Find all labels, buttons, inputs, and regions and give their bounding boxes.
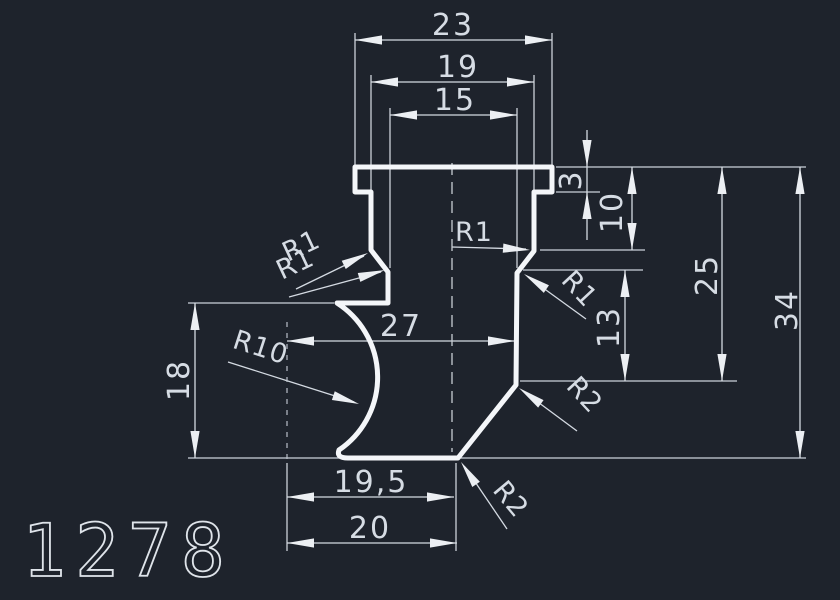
dim-label-15: 15 [434,83,476,118]
dim-arrowhead [488,336,515,345]
cad-drawing-canvas: 23 19 15 27 19,5 20 18 3 10 13 25 34 R1 … [0,0,840,600]
radius-label-r2-base: R2 [486,475,534,524]
dim-arrowhead [795,431,804,458]
dim-arrowhead [287,538,314,547]
dim-arrowhead [717,167,726,194]
dim-arrowhead [717,354,726,381]
part-profile-outline [337,167,552,458]
radius-label-r1-center: R1 [455,217,493,248]
dim-label-18: 18 [162,359,197,401]
leader-arrowhead [516,384,543,407]
dim-arrowhead [620,354,629,381]
dim-label-25: 25 [690,254,725,296]
cad-drawing: 23 19 15 27 19,5 20 18 3 10 13 25 34 R1 … [0,0,840,600]
dim-arrowhead [355,35,382,44]
dim-arrowhead [620,270,629,297]
dim-label-3: 3 [554,169,589,190]
dim-arrowhead [427,492,454,501]
dim-arrowhead [371,77,398,86]
drawing-number: 1278 [22,509,234,594]
dim-label-27: 27 [380,309,422,344]
dim-arrowhead [190,303,199,330]
dim-arrowhead [795,167,804,194]
dim-arrowhead [582,192,591,219]
leader-arrowhead [342,249,370,269]
dimension-labels: 23 19 15 27 19,5 20 18 3 10 13 25 34 [162,8,805,546]
leader-arrowhead [521,270,549,293]
radius-label-r2-shoulder: R2 [560,371,609,420]
dim-arrowhead [627,167,636,194]
dim-label-23: 23 [432,8,474,43]
dim-label-10: 10 [595,191,630,233]
dim-label-19: 19 [437,50,479,85]
dim-arrowhead [430,538,457,547]
dim-label-19-5: 19,5 [334,465,409,500]
dim-label-20: 20 [349,511,391,546]
radius-label-r10: R10 [229,325,292,372]
dim-arrowhead [390,110,417,119]
dim-arrowhead [287,492,314,501]
dim-label-13: 13 [592,306,627,348]
dim-label-34: 34 [770,289,805,331]
leader-arrowhead [457,459,480,487]
dim-arrowhead [582,140,591,167]
radius-labels: R1 R1 R1 R1 R2 R2 R10 [229,217,608,524]
dim-arrowhead [507,77,534,86]
dim-arrowhead [490,110,517,119]
leader-arrowhead [332,391,361,408]
dim-arrowhead [190,431,199,458]
dim-arrowhead [525,35,552,44]
